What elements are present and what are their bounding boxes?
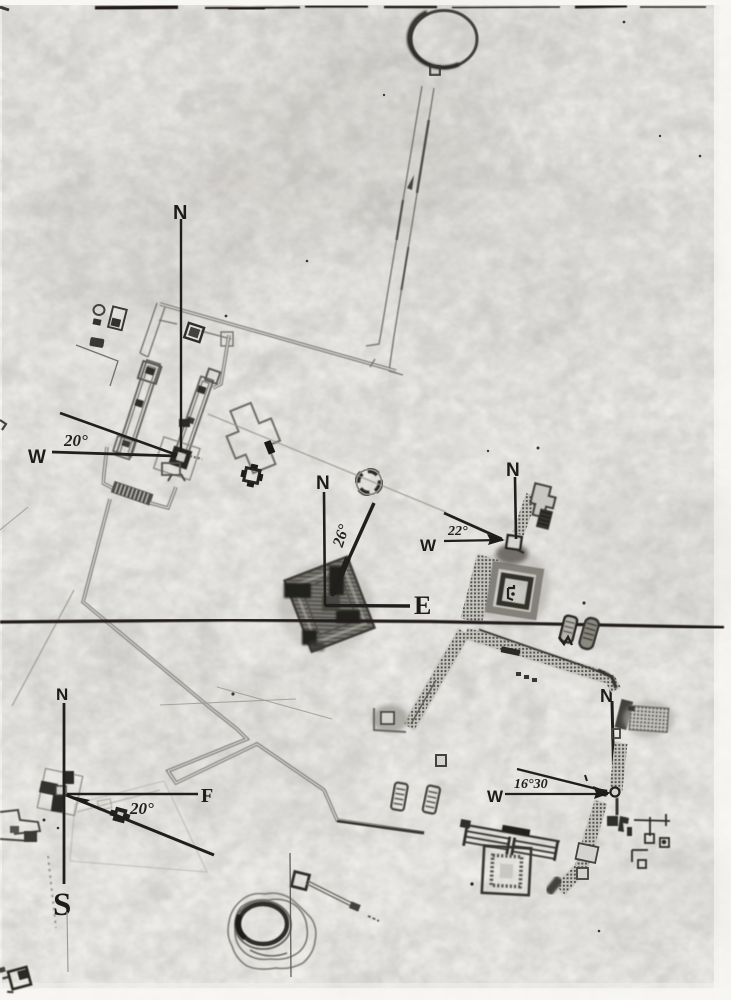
svg-text:F: F — [201, 785, 213, 807]
svg-text:N: N — [173, 202, 187, 224]
svg-text:N: N — [506, 460, 520, 481]
svg-text:N: N — [316, 473, 330, 494]
svg-text:W: W — [487, 787, 504, 806]
svg-text:S: S — [53, 887, 71, 923]
svg-text:22°: 22° — [447, 524, 468, 539]
svg-text:E: E — [414, 591, 431, 620]
svg-text:16°30: 16°30 — [514, 777, 548, 792]
svg-text:W: W — [420, 536, 437, 555]
svg-text:W: W — [28, 447, 46, 468]
svg-text:N: N — [56, 685, 68, 704]
svg-text:20°: 20° — [63, 431, 88, 450]
svg-text:20°: 20° — [129, 799, 154, 818]
